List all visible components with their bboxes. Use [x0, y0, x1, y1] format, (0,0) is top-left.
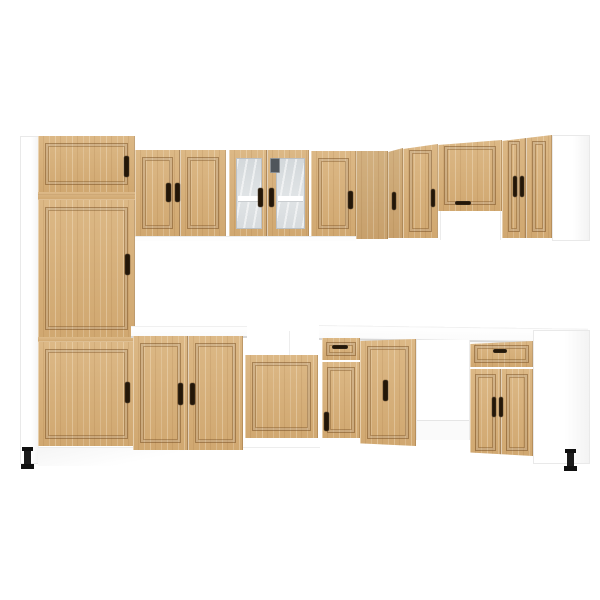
wing-wall-door-handle: [513, 176, 517, 197]
wall-cabinet-double: [135, 150, 226, 236]
wing-wall-door-handle: [431, 189, 435, 207]
left-foot: [24, 450, 31, 465]
hood-recess: [440, 211, 501, 240]
wall-door: [135, 150, 180, 236]
wing-base-door-cabinet: [360, 339, 416, 446]
drawer-handle: [332, 345, 348, 349]
corner-filler-upper: [356, 151, 388, 239]
glass-pane-right: [276, 158, 305, 229]
base-door-handle: [324, 412, 329, 431]
hood-wall-cabinet: [438, 140, 502, 211]
wall-door-handle: [175, 183, 180, 202]
corner-drawer-base-cabinet: [322, 338, 360, 438]
wall-door-handle: [166, 183, 171, 202]
wing-wall-door: [403, 144, 438, 238]
base-door-handle: [499, 397, 503, 417]
upper-end-panel: [552, 135, 590, 241]
base-door: [322, 362, 360, 438]
drawer-handle: [493, 349, 507, 353]
wing-drawer-base-cabinet: [470, 341, 533, 456]
glass-door-handle: [258, 188, 263, 207]
base-door: [470, 369, 501, 456]
wall-row-carcass-edge: [135, 236, 356, 241]
wing-wall-door-handle: [392, 192, 396, 210]
pantry-side-panel: [20, 136, 39, 464]
drawer-front: [470, 341, 533, 367]
pantry-rail: [38, 192, 135, 200]
wing-wall-door: [526, 135, 552, 238]
hob-base-cabinet: [245, 355, 318, 438]
right-foot: [567, 452, 574, 467]
base-door: [501, 369, 533, 456]
wing-wall-door-handle: [520, 176, 524, 197]
product-photo-kitchen-set: [0, 0, 600, 600]
wall-edge-line: [289, 331, 290, 355]
drawer-front: [322, 338, 360, 360]
tall-pantry-cabinet: [38, 136, 135, 446]
base-door: [188, 336, 243, 450]
wall-cabinet-glass: [229, 150, 309, 236]
hood-door-handle: [455, 201, 471, 205]
appliance-gap: [416, 340, 470, 440]
wall-cabinet-single: [311, 151, 356, 236]
pantry-door-top-handle: [124, 156, 129, 177]
pantry-door-bottom-handle: [125, 382, 130, 403]
base-door-handle: [383, 380, 388, 401]
base-door-handle: [492, 397, 496, 417]
cabinet-light-fixture: [270, 158, 280, 173]
base-end-panel: [533, 330, 590, 464]
gap-plinth-recess: [417, 421, 469, 440]
wall-door-handle: [348, 191, 353, 209]
base-door-handle: [178, 383, 183, 405]
pantry-door-top: [38, 136, 135, 192]
pantry-door-middle-handle: [125, 254, 130, 275]
glass-door-handle: [269, 188, 274, 207]
sink-base-cabinet: [133, 336, 243, 450]
wing-wall-cabinet-double: [502, 135, 552, 238]
pantry-door-bottom: [38, 342, 135, 446]
wall-door: [180, 150, 226, 236]
base-door-handle: [190, 383, 195, 405]
pantry-door-middle: [38, 200, 135, 337]
